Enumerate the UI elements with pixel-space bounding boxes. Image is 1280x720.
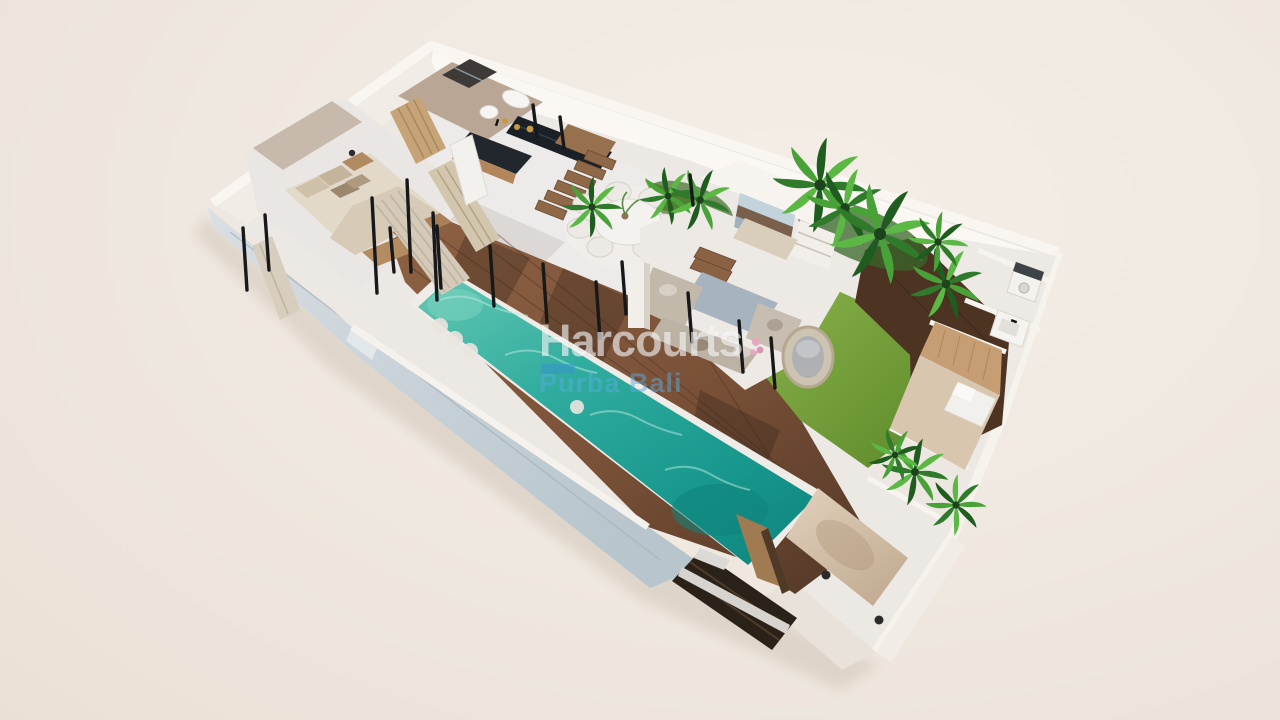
toilet xyxy=(480,106,498,119)
pendant-light xyxy=(502,118,508,124)
egg-chair xyxy=(783,327,833,387)
wall-sconce xyxy=(875,616,884,625)
deck-columns xyxy=(628,262,650,330)
villa-floor-plan xyxy=(0,0,1280,720)
wall-sconce xyxy=(822,571,831,580)
fruit-bowl xyxy=(527,126,534,133)
floor-plan-render: Harcourts Purba Bali xyxy=(0,0,1280,720)
pendant-light xyxy=(514,124,520,130)
